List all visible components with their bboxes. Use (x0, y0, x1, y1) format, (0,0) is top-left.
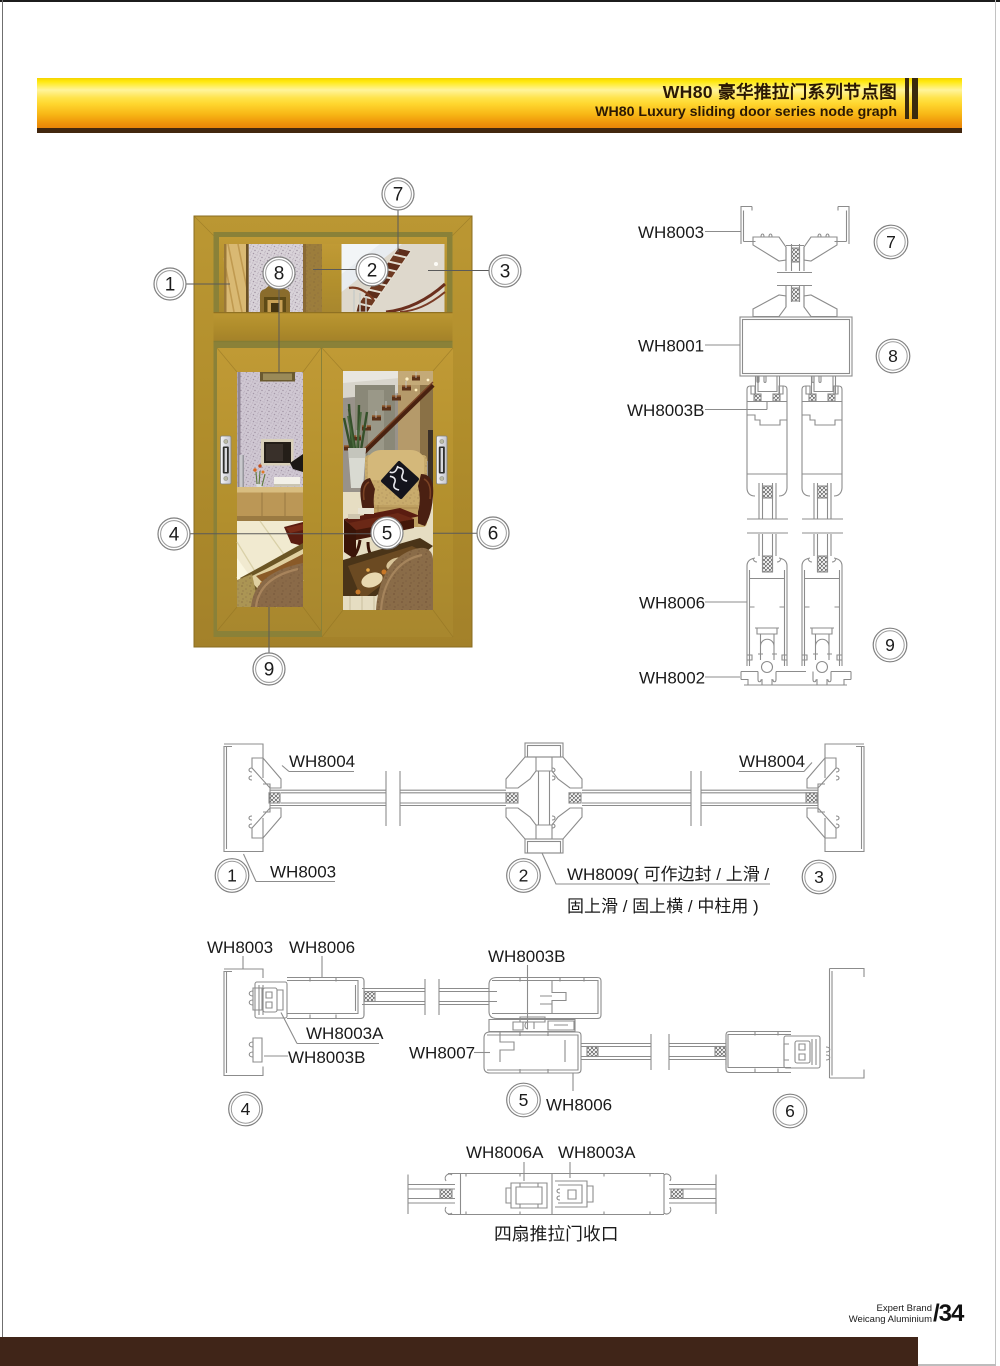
svg-text:2: 2 (519, 866, 529, 886)
svg-text:5: 5 (519, 1090, 529, 1110)
svg-text:6: 6 (488, 524, 499, 545)
svg-text:WH8006A: WH8006A (466, 1143, 544, 1162)
svg-text:WH8003: WH8003 (207, 938, 273, 957)
svg-text:WH8009( 可作边封 / 上滑 /: WH8009( 可作边封 / 上滑 / (567, 865, 769, 884)
svg-text:固上滑 / 固上横 / 中柱用 ): 固上滑 / 固上横 / 中柱用 ) (567, 897, 759, 916)
svg-text:WH8003: WH8003 (270, 863, 336, 882)
svg-text:3: 3 (814, 867, 824, 887)
svg-text:9: 9 (885, 635, 895, 655)
svg-text:9: 9 (264, 660, 275, 681)
svg-text:4: 4 (169, 525, 180, 546)
svg-text:WH8003A: WH8003A (306, 1024, 384, 1043)
svg-text:WH8006: WH8006 (289, 938, 355, 957)
svg-text:WH8003B: WH8003B (288, 1048, 365, 1067)
svg-text:7: 7 (393, 185, 404, 206)
svg-text:8: 8 (274, 264, 285, 285)
svg-text:WH8004: WH8004 (739, 752, 805, 771)
svg-text:3: 3 (500, 262, 511, 283)
svg-text:WH8006: WH8006 (546, 1096, 612, 1115)
svg-text:7: 7 (886, 232, 896, 252)
svg-text:1: 1 (165, 275, 176, 296)
svg-text:WH8003B: WH8003B (488, 947, 565, 966)
svg-text:5: 5 (382, 524, 393, 545)
svg-text:6: 6 (785, 1101, 795, 1121)
svg-text:1: 1 (227, 866, 237, 886)
svg-text:WH8003B: WH8003B (627, 401, 704, 420)
svg-text:8: 8 (888, 346, 898, 366)
svg-text:4: 4 (241, 1099, 251, 1119)
svg-text:WH8001: WH8001 (638, 337, 704, 356)
svg-text:WH8003: WH8003 (638, 223, 704, 242)
svg-text:WH8007: WH8007 (409, 1044, 475, 1063)
svg-text:WH8006: WH8006 (639, 594, 705, 613)
svg-text:WH8002: WH8002 (639, 669, 705, 688)
svg-text:2: 2 (367, 261, 378, 282)
svg-text:WH8003A: WH8003A (558, 1143, 636, 1162)
svg-text:四扇推拉门收口: 四扇推拉门收口 (494, 1224, 618, 1244)
svg-text:WH8004: WH8004 (289, 752, 355, 771)
